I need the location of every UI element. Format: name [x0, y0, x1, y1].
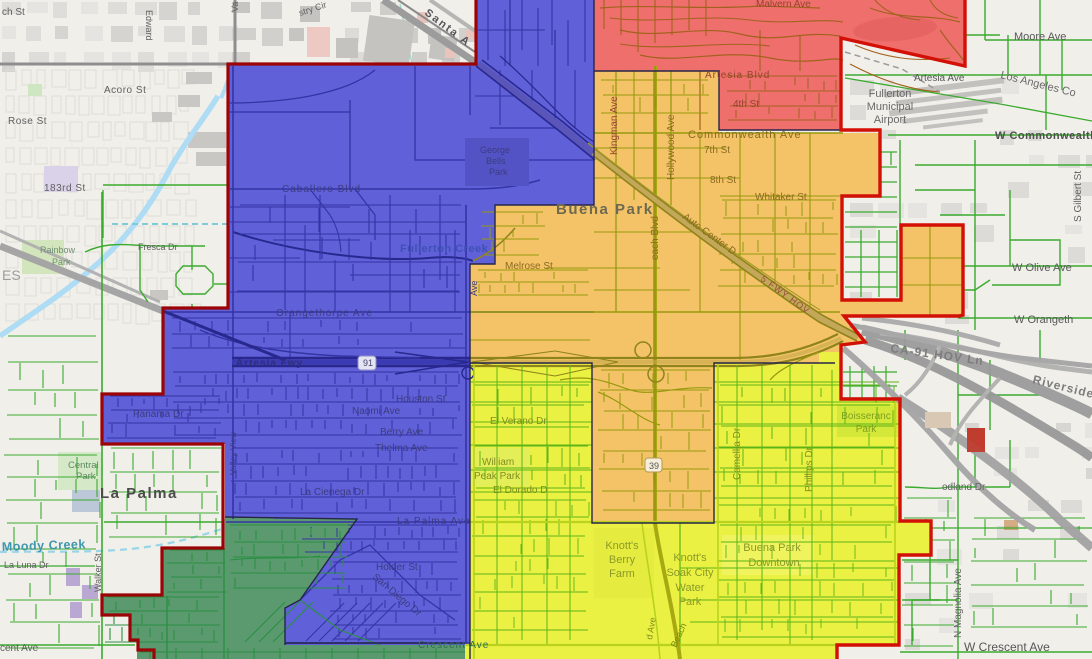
- svg-text:Rainbow: Rainbow: [40, 245, 76, 255]
- svg-text:Fullerton: Fullerton: [869, 88, 912, 100]
- svg-text:Edward: Edward: [144, 10, 154, 41]
- svg-text:Thelma Ave: Thelma Ave: [375, 443, 428, 454]
- svg-text:S Gilbert St: S Gilbert St: [1073, 171, 1084, 222]
- svg-text:Holder St: Holder St: [376, 562, 418, 573]
- svg-text:Crescent Ave: Crescent Ave: [418, 640, 489, 651]
- svg-text:Bells: Bells: [486, 156, 506, 166]
- svg-text:El Verano Dr: El Verano Dr: [490, 416, 547, 427]
- svg-text:Malvern Ave: Malvern Ave: [756, 0, 811, 10]
- svg-text:Boisseranc: Boisseranc: [841, 411, 890, 422]
- svg-text:4th St: 4th St: [733, 99, 759, 110]
- svg-text:Caballero Blvd: Caballero Blvd: [282, 184, 361, 195]
- svg-text:Fresca Dr: Fresca Dr: [138, 242, 178, 252]
- svg-text:W Olive Ave: W Olive Ave: [1012, 262, 1072, 274]
- svg-text:Rose St: Rose St: [8, 116, 47, 127]
- svg-text:ES: ES: [2, 267, 21, 283]
- svg-text:91: 91: [363, 358, 373, 368]
- svg-text:Water: Water: [676, 582, 705, 594]
- svg-text:Acoro St: Acoro St: [104, 85, 146, 96]
- svg-text:7th St: 7th St: [704, 145, 730, 156]
- svg-text:La Palma: La Palma: [100, 485, 178, 502]
- svg-text:183rd St: 183rd St: [44, 183, 86, 194]
- svg-text:Buena Park: Buena Park: [556, 201, 654, 218]
- svg-text:Moore Ave: Moore Ave: [1014, 31, 1066, 43]
- svg-text:Central: Central: [68, 460, 99, 471]
- svg-text:Artesia Ave: Artesia Ave: [914, 73, 965, 84]
- svg-text:Park: Park: [856, 424, 878, 435]
- svg-text:Airport: Airport: [874, 114, 906, 126]
- svg-text:El Dorado D: El Dorado D: [493, 485, 547, 496]
- svg-text:Hollywood Ave: Hollywood Ave: [666, 114, 677, 180]
- svg-text:Ave: Ave: [469, 281, 479, 296]
- svg-text:Va: Va: [230, 2, 240, 12]
- svg-text:Municipal: Municipal: [867, 101, 913, 113]
- svg-text:N Magnolia Ave: N Magnolia Ave: [953, 568, 964, 638]
- svg-text:Farm: Farm: [609, 568, 635, 580]
- svg-text:Panama Dr: Panama Dr: [133, 409, 184, 420]
- svg-text:Berry Ave: Berry Ave: [380, 427, 424, 438]
- svg-text:cent Ave: cent Ave: [0, 643, 39, 654]
- svg-text:8th St: 8th St: [710, 175, 736, 186]
- svg-text:Fullerton Creek: Fullerton Creek: [400, 243, 489, 255]
- svg-text:W Orangeth: W Orangeth: [1014, 314, 1073, 326]
- svg-text:Artesia Blvd: Artesia Blvd: [705, 70, 770, 81]
- svg-text:Naomi Ave: Naomi Ave: [352, 406, 401, 417]
- svg-text:Melrose St: Melrose St: [505, 261, 553, 272]
- svg-text:Knott's: Knott's: [605, 540, 639, 552]
- svg-text:W Commonwealth: W Commonwealth: [995, 130, 1092, 142]
- svg-text:La Palma Ave: La Palma Ave: [397, 516, 471, 527]
- svg-text:Walker St: Walker St: [93, 553, 103, 592]
- svg-text:Park: Park: [76, 471, 96, 482]
- svg-text:Berry: Berry: [609, 554, 636, 566]
- svg-text:ch St: ch St: [2, 7, 25, 18]
- svg-text:Soak City: Soak City: [666, 567, 714, 579]
- svg-text:George: George: [480, 145, 510, 155]
- svg-text:Orangethorpe Ave: Orangethorpe Ave: [276, 308, 373, 319]
- svg-text:Downtown: Downtown: [748, 557, 799, 569]
- svg-text:W Crescent Ave: W Crescent Ave: [964, 640, 1050, 654]
- svg-text:Knott's: Knott's: [673, 552, 707, 564]
- svg-text:Park: Park: [489, 167, 508, 177]
- svg-text:Houston St: Houston St: [396, 394, 446, 405]
- svg-text:each Blvd: each Blvd: [650, 216, 661, 260]
- svg-text:Peak Park: Peak Park: [474, 471, 521, 482]
- svg-text:Park: Park: [679, 596, 702, 608]
- svg-text:Whitaker St: Whitaker St: [755, 192, 807, 203]
- svg-text:William: William: [482, 457, 514, 468]
- svg-text:Park: Park: [52, 257, 71, 267]
- svg-text:Phillips Dr: Phillips Dr: [804, 446, 815, 492]
- svg-text:Kingman Ave: Kingman Ave: [609, 96, 620, 155]
- svg-text:La Luna Dr: La Luna Dr: [4, 560, 49, 570]
- svg-text:odland Dr: odland Dr: [942, 482, 986, 493]
- svg-text:Valley View: Valley View: [228, 431, 238, 475]
- svg-text:Artesia Fwy: Artesia Fwy: [236, 358, 303, 369]
- svg-text:39: 39: [649, 461, 659, 471]
- svg-text:Commonwealth Ave: Commonwealth Ave: [688, 129, 802, 141]
- svg-text:Buena Park: Buena Park: [743, 542, 801, 554]
- svg-text:La Cienega Dr: La Cienega Dr: [300, 487, 365, 498]
- svg-text:Moody Creek: Moody Creek: [2, 537, 86, 554]
- svg-text:Camellia Dr: Camellia Dr: [732, 427, 743, 480]
